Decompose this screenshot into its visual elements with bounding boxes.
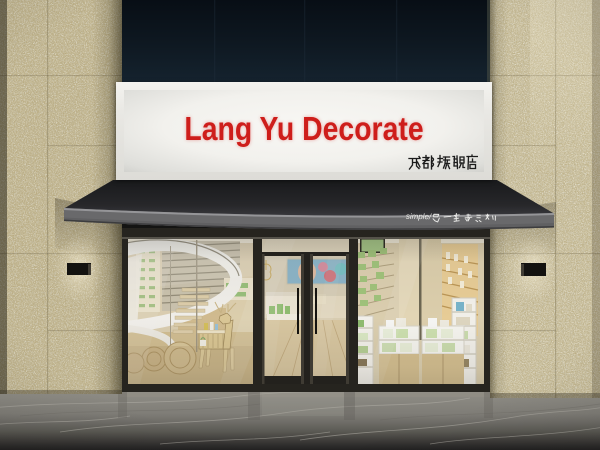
svg-text:simple/: simple/ [406,212,432,222]
